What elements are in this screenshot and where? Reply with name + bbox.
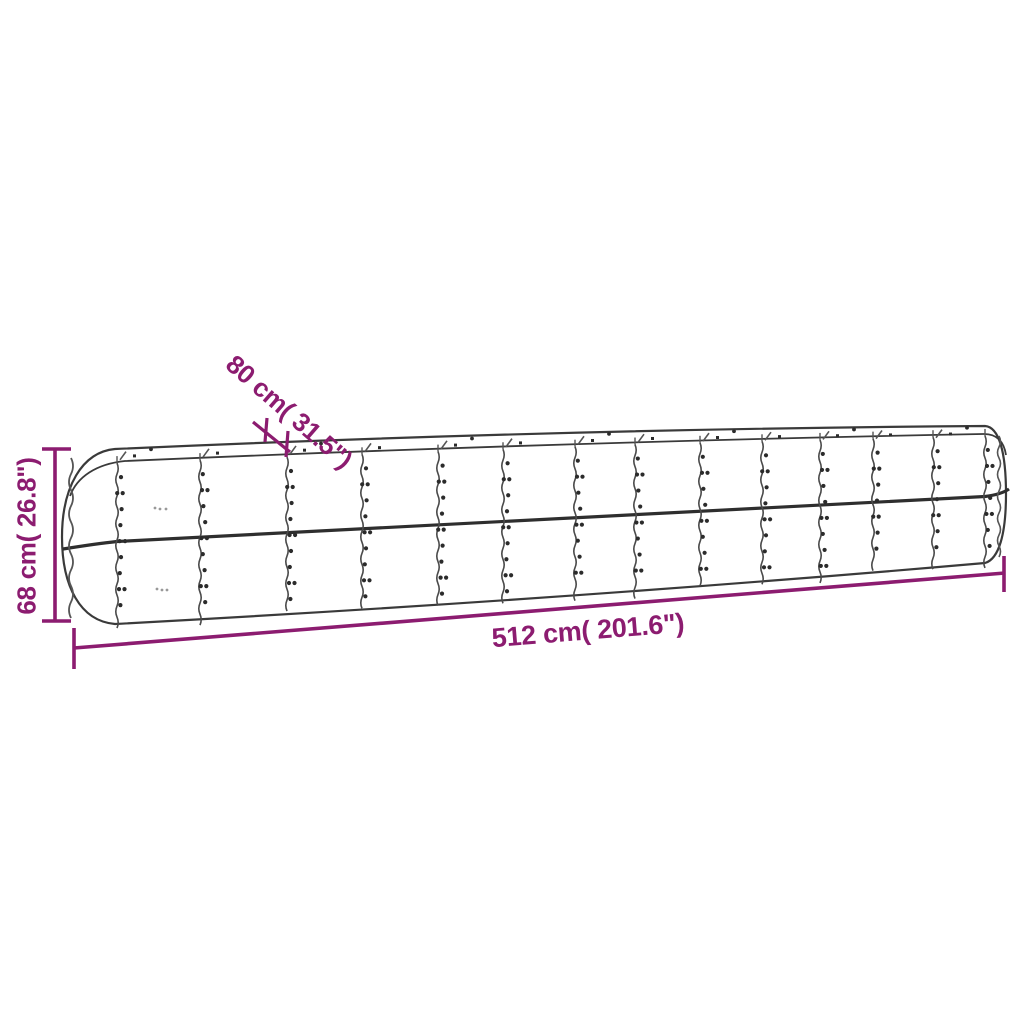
planter-illustration <box>0 0 1024 1024</box>
height-dimension-label: 68 cm( 26.8") <box>12 457 43 614</box>
product-dimension-diagram: 68 cm( 26.8") 80 cm( 31.5") 512 cm( 201.… <box>0 0 1024 1024</box>
